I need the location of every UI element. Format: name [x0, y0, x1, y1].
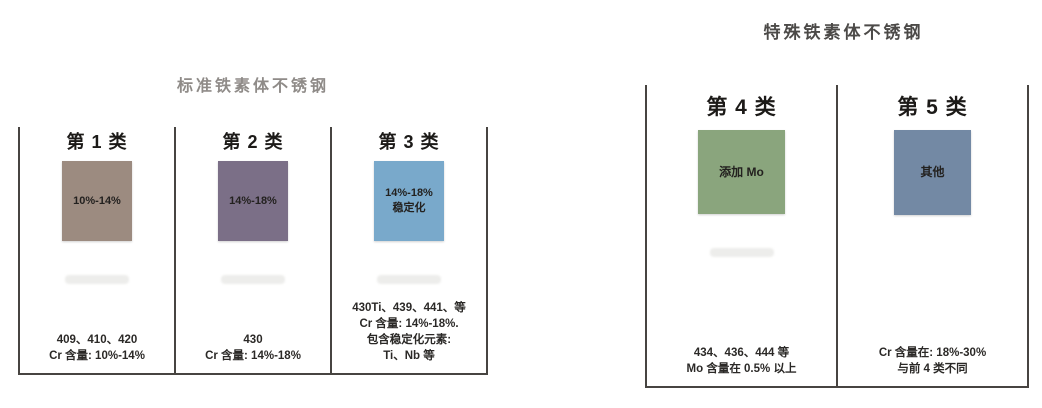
class-5-color-box: 其他: [894, 130, 971, 215]
class-1-color-box: 10%-14%: [62, 161, 132, 241]
special-group-panel: 第 4 类 添加 Mo 434、436、444 等 Mo 含量在 0.5% 以上…: [645, 85, 1029, 388]
faded-artifact: [377, 275, 441, 284]
class-3-note: 430Ti、439、441、等 Cr 含量: 14%-18%. 包含稳定化元素:…: [348, 300, 470, 364]
standard-group-panel: 第 1 类 10%-14% 409、410、420 Cr 含量: 10%-14%…: [18, 127, 488, 375]
faded-artifact: [65, 275, 129, 284]
class-4-note: 434、436、444 等 Mo 含量在 0.5% 以上: [683, 345, 801, 377]
class-3-header: 第 3 类: [378, 128, 439, 154]
class-3-column: 第 3 类 14%-18% 稳定化 430Ti、439、441、等 Cr 含量:…: [330, 127, 488, 373]
class-4-column: 第 4 类 添加 Mo 434、436、444 等 Mo 含量在 0.5% 以上: [645, 85, 836, 386]
class-2-column: 第 2 类 14%-18% 430 Cr 含量: 14%-18%: [174, 127, 330, 373]
class-5-header: 第 5 类: [897, 91, 967, 121]
faded-artifact: [221, 275, 285, 284]
class-2-header: 第 2 类: [222, 128, 283, 154]
class-2-note: 430 Cr 含量: 14%-18%: [201, 332, 305, 364]
standard-group-title: 标准铁素体不锈钢: [18, 72, 488, 96]
class-2-color-box: 14%-18%: [218, 161, 288, 241]
class-1-note: 409、410、420 Cr 含量: 10%-14%: [45, 332, 149, 364]
special-group-title: 特殊铁素体不锈钢: [652, 18, 1035, 43]
class-5-note: Cr 含量在: 18%-30% 与前 4 类不同: [875, 345, 990, 377]
class-4-color-box: 添加 Mo: [698, 130, 785, 214]
class-4-header: 第 4 类: [706, 91, 776, 121]
class-1-header: 第 1 类: [66, 128, 127, 154]
class-1-column: 第 1 类 10%-14% 409、410、420 Cr 含量: 10%-14%: [18, 127, 174, 373]
class-5-column: 第 5 类 其他 Cr 含量在: 18%-30% 与前 4 类不同: [836, 85, 1029, 386]
faded-artifact: [710, 248, 774, 257]
class-3-color-box: 14%-18% 稳定化: [374, 161, 444, 241]
diagram-canvas: 标准铁素体不锈钢 第 1 类 10%-14% 409、410、420 Cr 含量…: [0, 0, 1042, 408]
